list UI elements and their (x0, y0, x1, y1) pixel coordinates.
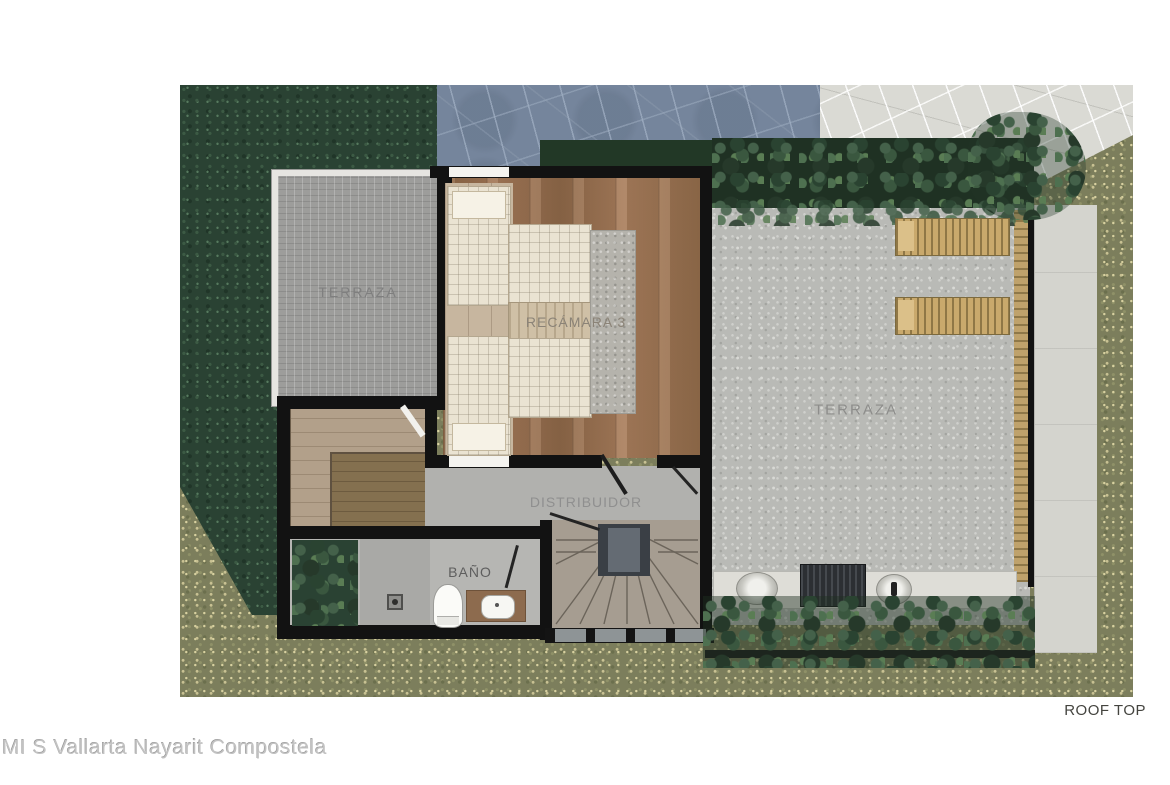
bathroom-planter (292, 540, 358, 626)
terrace-bottom-planter (703, 596, 1035, 668)
single-bed-bottom-icon (447, 336, 511, 456)
room-label-terraza-right: TERRAZA (814, 402, 898, 419)
pillow-icon (452, 191, 506, 219)
watermark: MI S Vallarta Nayarit Compostela (2, 736, 327, 760)
closet-room-inner-platform (330, 452, 429, 532)
lounger-icon (895, 218, 1010, 256)
drain-dot (392, 599, 398, 605)
window-niche-top (449, 167, 509, 177)
staircase-area (552, 520, 702, 630)
shower-drain-icon (387, 594, 403, 610)
toilet-tank (437, 616, 459, 625)
window-niche-bottom (449, 456, 509, 467)
shower-floor (360, 538, 430, 628)
single-bed-top-icon (447, 186, 511, 306)
toilet-icon (433, 584, 463, 628)
plan-title: ROOF TOP (1040, 702, 1146, 719)
lounger-headrest (898, 300, 914, 330)
wall-bedroom-right (700, 166, 712, 472)
lounger-icon (895, 297, 1010, 335)
floor-plan-canvas: TERRAZA RECÁMARA 3 TERRAZA DISTRIBUIDOR … (0, 0, 1170, 785)
pillow-icon (452, 423, 506, 451)
main-bed-mattress-top (508, 224, 592, 304)
window-wall-stairs (545, 628, 714, 643)
stair-landing-panel (608, 528, 640, 572)
room-label-bano: BAÑO (448, 564, 492, 580)
main-bed-mattress-bottom (508, 338, 592, 418)
side-walkway (1034, 205, 1097, 653)
wall-stair-left (540, 520, 552, 640)
room-label-terraza-left: TERRAZA (318, 284, 397, 300)
wall-bathroom-bottom (277, 625, 545, 639)
lounger-headrest (898, 221, 914, 251)
sink-icon (481, 595, 515, 619)
vanity-counter (466, 590, 526, 622)
table-item (891, 582, 897, 596)
room-label-recamara-3: RECÁMARA 3 (526, 314, 626, 330)
wall-house-left (277, 396, 290, 636)
faucet-icon (495, 603, 499, 607)
room-label-distribuidor: DISTRIBUIDOR (530, 494, 642, 510)
wall-terrace-right-edge (1028, 205, 1034, 587)
wood-deck-strip (1014, 210, 1028, 582)
stair-landing (598, 524, 650, 576)
corner-tree-canopy (968, 112, 1086, 220)
wall-bathroom-top (277, 526, 545, 539)
